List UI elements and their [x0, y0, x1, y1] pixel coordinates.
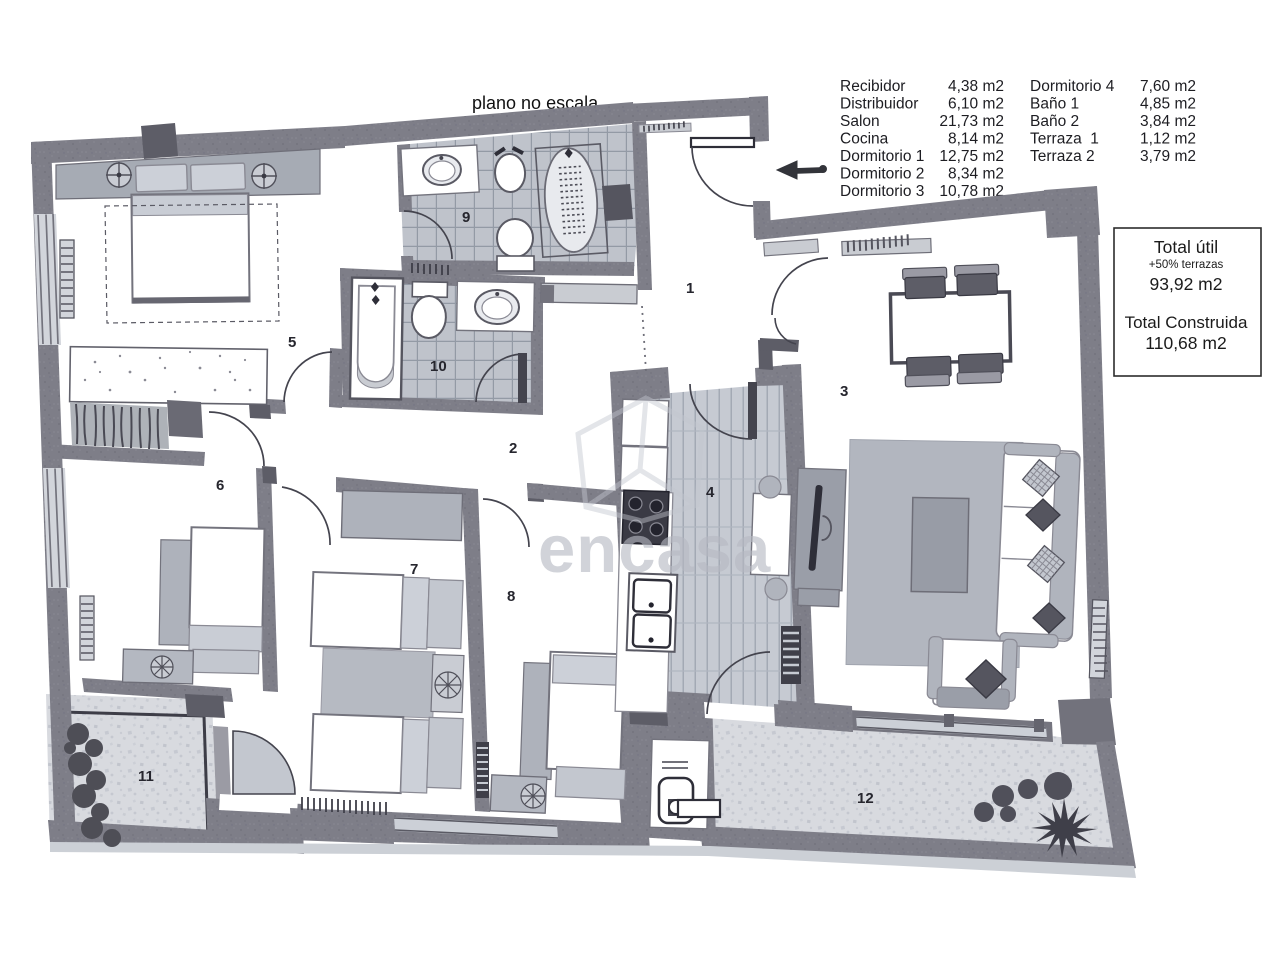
svg-text:12: 12 — [857, 790, 874, 807]
svg-text:11: 11 — [138, 768, 154, 785]
svg-text:8,14 m2: 8,14 m2 — [948, 131, 1004, 148]
svg-text:4,85 m2: 4,85 m2 — [1140, 96, 1196, 113]
svg-text:1,12 m2: 1,12 m2 — [1140, 131, 1196, 148]
svg-text:7: 7 — [410, 561, 418, 578]
svg-text:Baño 2: Baño 2 — [1030, 113, 1079, 130]
svg-text:8: 8 — [507, 588, 515, 605]
svg-text:Distribuidor: Distribuidor — [840, 96, 918, 113]
svg-text:10: 10 — [430, 358, 447, 375]
svg-text:2: 2 — [509, 440, 517, 457]
svg-text:Dormitorio 1: Dormitorio 1 — [840, 148, 924, 165]
svg-text:Total Construida: Total Construida — [1125, 313, 1248, 332]
svg-text:6,10 m2: 6,10 m2 — [948, 96, 1004, 113]
svg-text:Baño 1: Baño 1 — [1030, 96, 1079, 113]
svg-text:+50% terrazas: +50% terrazas — [1149, 259, 1224, 271]
svg-text:Terraza 2: Terraza 2 — [1030, 148, 1095, 165]
svg-text:Cocina: Cocina — [840, 131, 889, 148]
svg-text:Total útil: Total útil — [1154, 237, 1218, 257]
svg-text:encasa: encasa — [538, 512, 771, 587]
svg-text:3,79 m2: 3,79 m2 — [1140, 148, 1196, 165]
svg-text:Dormitorio 3: Dormitorio 3 — [840, 183, 924, 200]
svg-text:Salon: Salon — [840, 113, 880, 130]
svg-text:Dormitorio 4: Dormitorio 4 — [1030, 78, 1115, 95]
svg-text:5: 5 — [288, 334, 296, 351]
svg-text:7,60 m2: 7,60 m2 — [1140, 78, 1196, 95]
svg-text:110,68 m2: 110,68 m2 — [1145, 333, 1226, 353]
svg-text:4: 4 — [706, 484, 715, 501]
svg-text:3: 3 — [840, 383, 848, 400]
svg-text:Terraza 1: Terraza 1 — [1030, 131, 1099, 148]
svg-text:Recibidor: Recibidor — [840, 78, 905, 95]
svg-text:1: 1 — [686, 280, 694, 297]
svg-text:8,34 m2: 8,34 m2 — [948, 166, 1004, 183]
svg-text:6: 6 — [216, 477, 224, 494]
svg-text:4,38 m2: 4,38 m2 — [948, 78, 1004, 95]
svg-text:12,75 m2: 12,75 m2 — [939, 148, 1004, 165]
svg-text:21,73 m2: 21,73 m2 — [939, 113, 1004, 130]
svg-text:93,92 m2: 93,92 m2 — [1150, 274, 1223, 294]
svg-text:3,84 m2: 3,84 m2 — [1140, 113, 1196, 130]
svg-text:Dormitorio 2: Dormitorio 2 — [840, 166, 924, 183]
svg-text:9: 9 — [462, 209, 470, 226]
